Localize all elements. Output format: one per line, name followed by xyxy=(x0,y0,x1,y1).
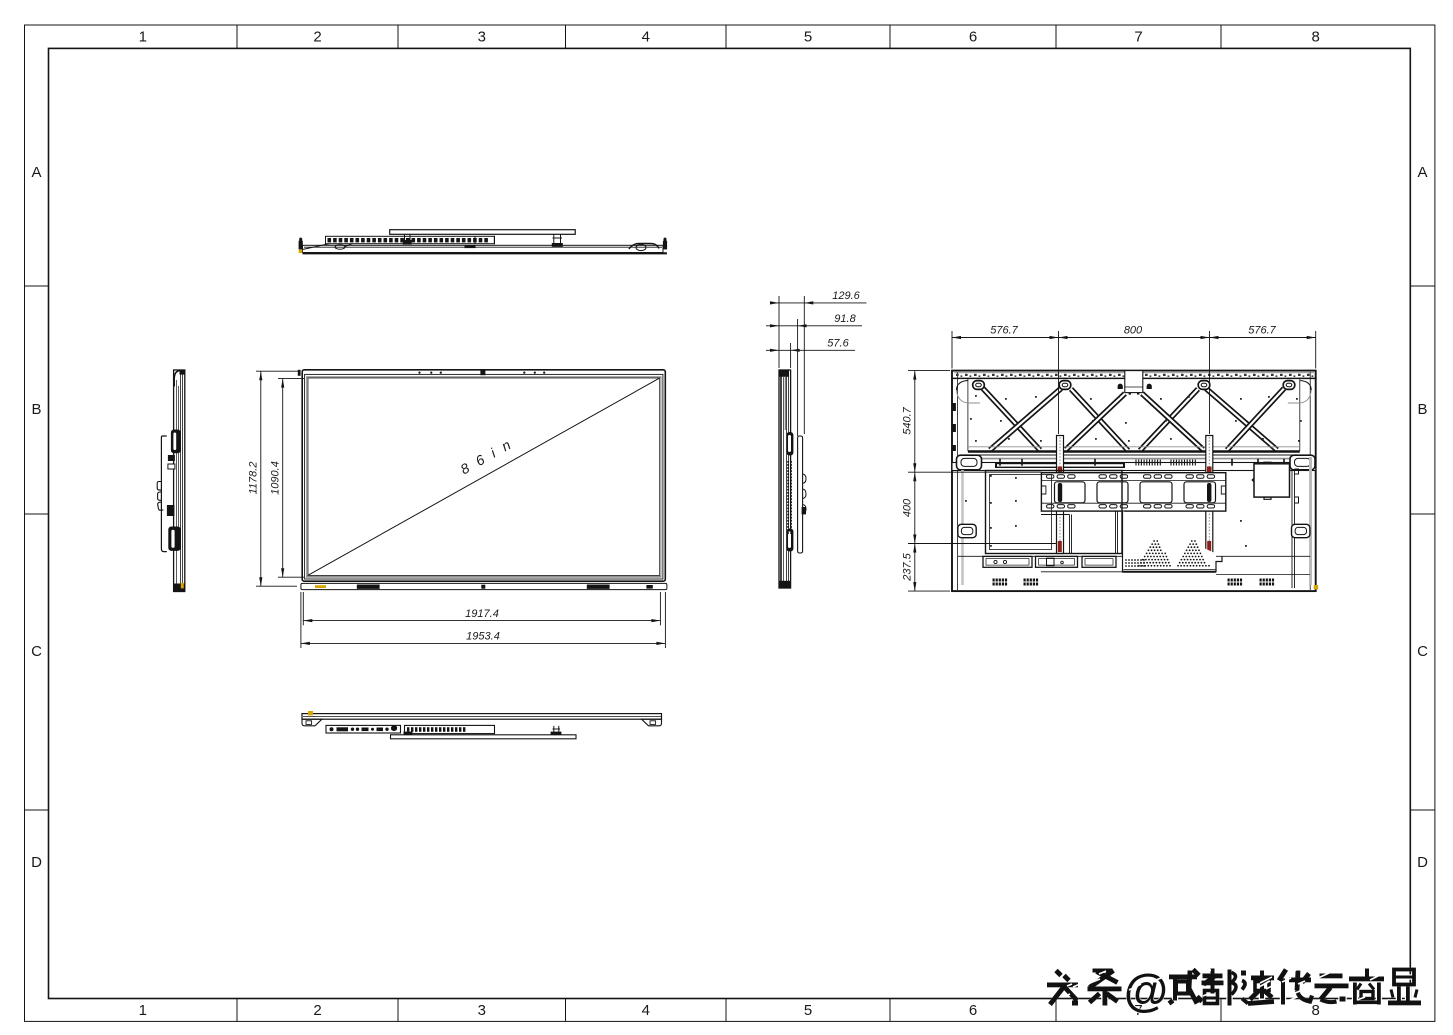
svg-text:D: D xyxy=(1417,854,1428,871)
svg-text:D: D xyxy=(31,854,42,871)
svg-text:C: C xyxy=(1417,643,1428,660)
svg-text:1: 1 xyxy=(139,29,147,46)
svg-text:B: B xyxy=(1417,401,1427,418)
svg-text:4: 4 xyxy=(642,29,650,46)
svg-text:5: 5 xyxy=(804,29,812,46)
svg-text:800: 800 xyxy=(1124,324,1143,336)
svg-text:6: 6 xyxy=(969,29,977,46)
svg-text:@: @ xyxy=(1124,965,1168,1016)
svg-text:1917.4: 1917.4 xyxy=(465,608,499,620)
svg-text:1178.2: 1178.2 xyxy=(248,462,260,495)
svg-text:576.7: 576.7 xyxy=(990,324,1018,336)
svg-text:5: 5 xyxy=(804,1002,812,1019)
svg-text:C: C xyxy=(31,643,42,660)
svg-text:400: 400 xyxy=(901,498,913,517)
svg-text:3: 3 xyxy=(478,29,486,46)
svg-text:237.5: 237.5 xyxy=(901,552,913,581)
svg-text:57.6: 57.6 xyxy=(827,337,849,349)
svg-text:6: 6 xyxy=(969,1002,977,1019)
svg-text:4: 4 xyxy=(642,1002,650,1019)
svg-text:1953.4: 1953.4 xyxy=(466,631,500,643)
svg-text:A: A xyxy=(1417,164,1427,181)
svg-text:2: 2 xyxy=(313,29,321,46)
svg-text:1090.4: 1090.4 xyxy=(269,461,281,495)
svg-text:A: A xyxy=(31,164,41,181)
svg-text:1: 1 xyxy=(139,1002,147,1019)
svg-text:129.6: 129.6 xyxy=(832,290,860,302)
svg-text:B: B xyxy=(31,401,41,418)
svg-text:91.8: 91.8 xyxy=(834,313,856,325)
svg-text:7: 7 xyxy=(1134,29,1142,46)
svg-text:8: 8 xyxy=(1312,29,1320,46)
svg-text:3: 3 xyxy=(478,1002,486,1019)
svg-text:8: 8 xyxy=(1312,1002,1320,1019)
svg-text:540.7: 540.7 xyxy=(901,406,913,434)
svg-text:2: 2 xyxy=(313,1002,321,1019)
svg-text:576.7: 576.7 xyxy=(1248,324,1276,336)
